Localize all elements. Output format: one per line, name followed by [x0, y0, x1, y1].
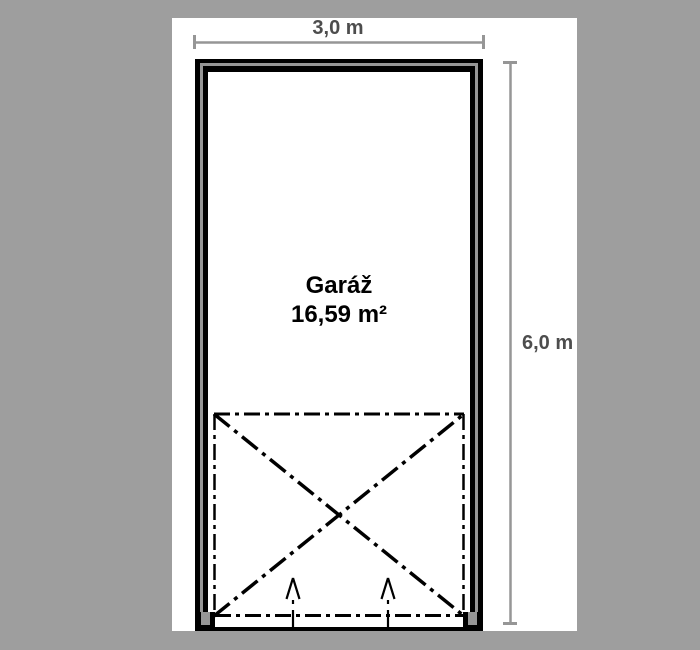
wall-core-right [475, 63, 478, 612]
room-area-label: 16,59 m² [291, 301, 387, 328]
room-name-label: Garáž [306, 272, 373, 299]
floor-plan-canvas: Garáž 16,59 m² 3,0 m 6,0 m [0, 0, 700, 650]
wall-core-left [200, 63, 203, 612]
door-threshold-line [195, 627, 483, 631]
wall-core-top [200, 63, 478, 66]
wall-core-jamb-left [201, 612, 210, 625]
dimension-right-label: 6,0 m [522, 332, 573, 354]
dimension-top-label: 3,0 m [312, 17, 363, 39]
wall-core-jamb-right [468, 612, 477, 625]
